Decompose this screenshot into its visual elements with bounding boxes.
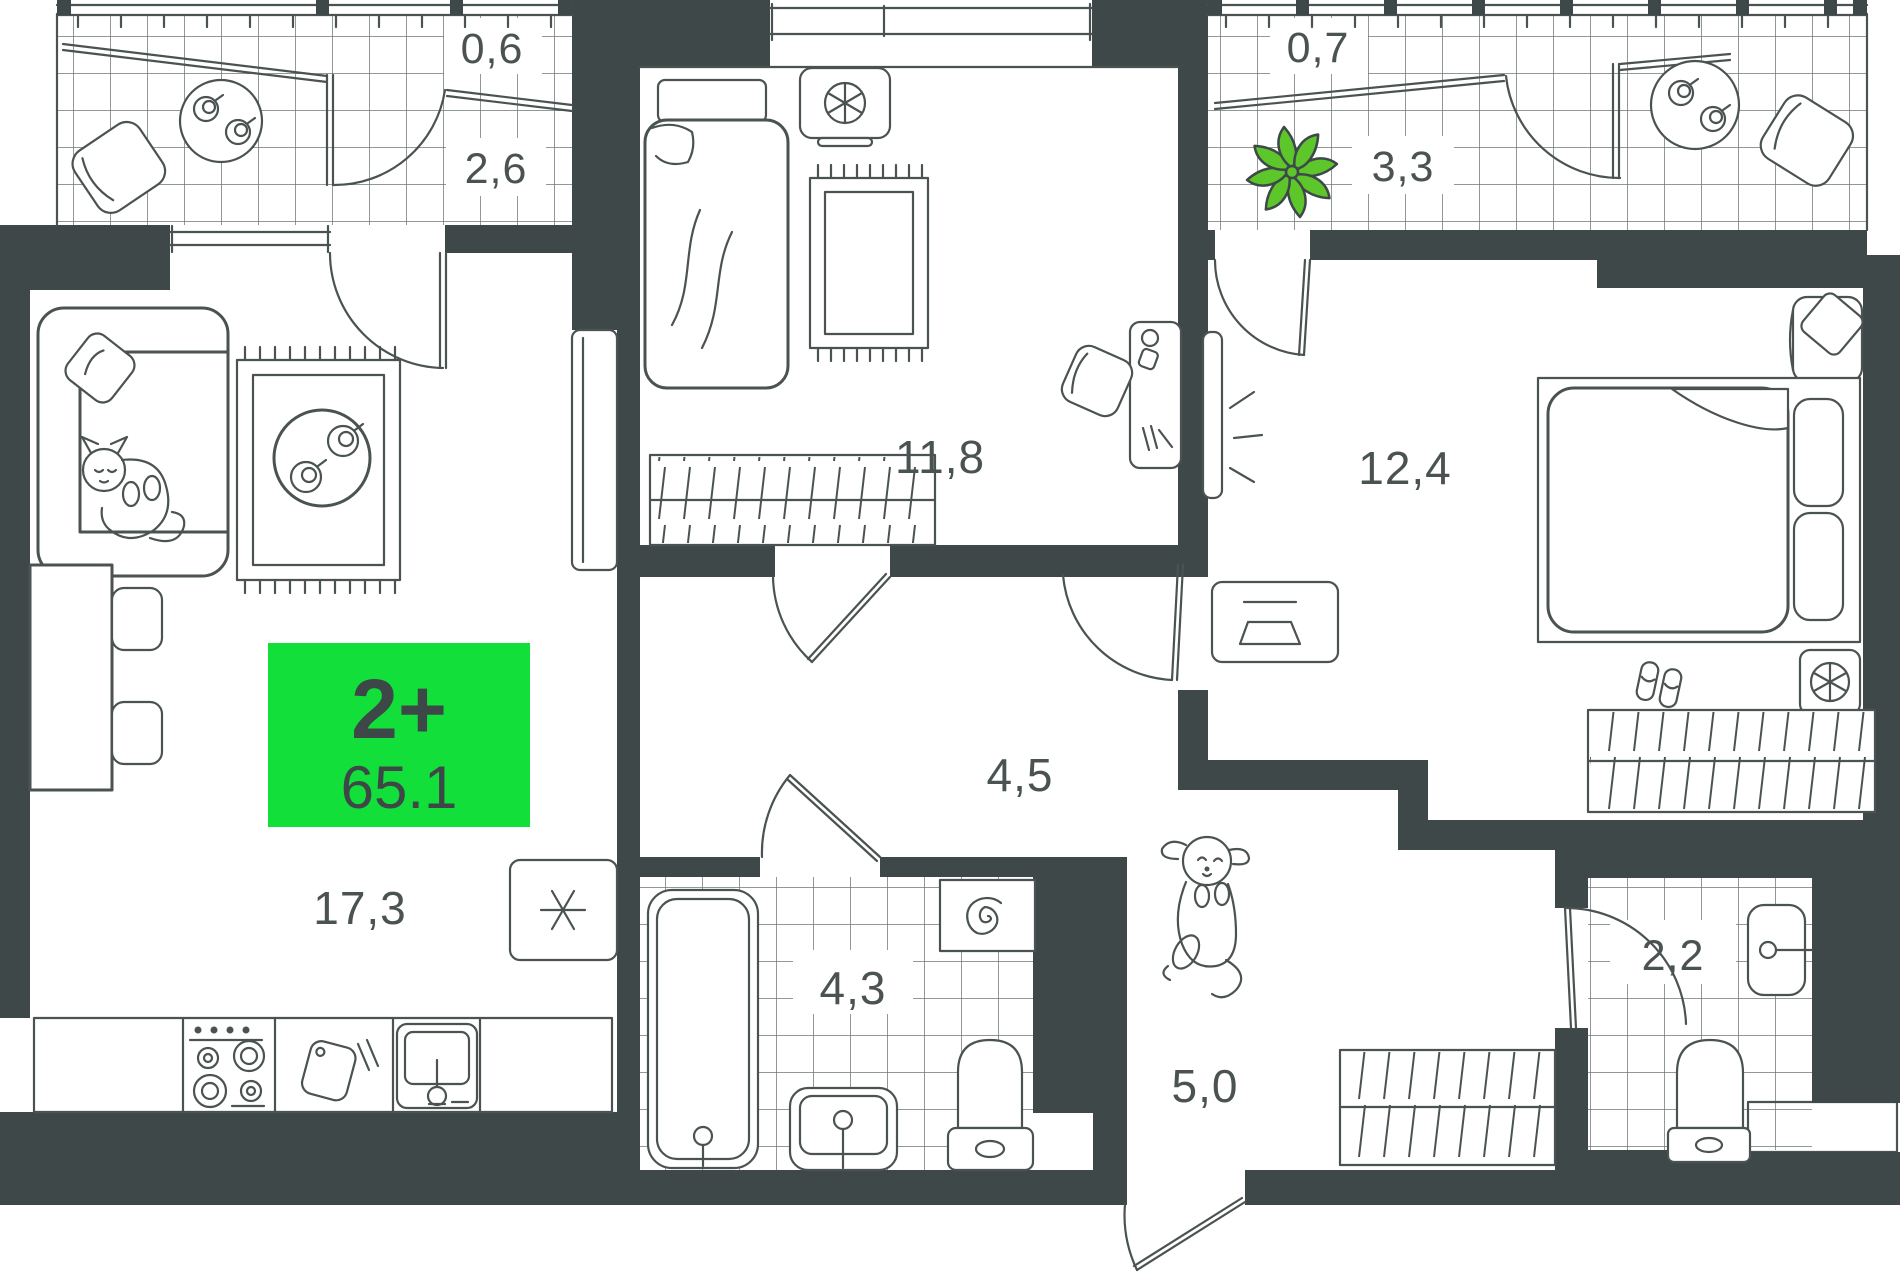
area-label-balcony-right: 3,3 [1372,143,1435,191]
armchair-icon [1790,290,1866,382]
area-label-balcony-right-upper: 0,7 [1287,24,1350,72]
kitchen-sink-icon [397,1024,477,1108]
single-bed-icon [645,80,788,388]
entrance-door [1125,1198,1245,1270]
floor-plan-page: 0,6 2,6 0,7 3,3 11,8 12,4 17,3 4,5 4,3 5… [0,0,1900,1276]
area-label-corridor: 5,0 [1172,1060,1239,1112]
dog-icon [1162,837,1249,997]
living-room-window [170,225,330,253]
dining-table-icon [30,565,162,790]
entry-wardrobe-icon [1340,1050,1555,1165]
area-label-living-kitchen: 17,3 [313,882,407,934]
wardrobe-icon [650,455,935,545]
ac-fan-icon [800,68,890,146]
rug-hatched-icon [1588,710,1875,812]
wc-toilet-icon [1668,1040,1750,1162]
fan-icon [1800,650,1860,714]
rug-icon [810,165,928,361]
area-label-hallway: 4,5 [987,749,1054,801]
living-balcony-door [330,253,446,368]
corridor [1162,837,1555,1165]
bedroom-right-door [1063,565,1183,680]
desk-icon [1130,322,1181,468]
slippers-icon [1635,661,1683,709]
bedroom-right [1203,290,1875,812]
area-label-bedroom-middle: 11,8 [895,431,985,483]
bathtub-icon [648,890,758,1168]
tall-cabinet-icon [572,330,617,570]
sofa-icon [38,308,228,576]
area-label-wc: 2,2 [1642,932,1705,980]
toilet-icon [948,1040,1033,1170]
area-label-bathroom: 4,3 [820,962,887,1014]
area-badge: 2+ 65.1 [268,643,530,827]
bedroom-middle-door [773,574,890,662]
bathroom-door [762,775,880,861]
cutting-board-icon [300,1039,378,1103]
desk-chair-icon [1057,341,1136,420]
tv-icon [1203,332,1262,498]
bedroom-right-balcony-door [1215,260,1310,355]
coffee-table-icon [274,410,370,506]
badge-rooms-label: 2+ [351,662,447,756]
washbasin-icon [790,1088,897,1170]
double-bed-icon [1538,378,1860,642]
balcony-table-icon [180,80,262,162]
area-label-balcony-left-upper: 0,6 [461,25,524,73]
area-label-bedroom-right: 12,4 [1358,442,1452,494]
wc-washbasin-icon [1748,905,1812,995]
badge-area-value: 65.1 [341,754,458,821]
floor-plan-svg: 0,6 2,6 0,7 3,3 11,8 12,4 17,3 4,5 4,3 5… [0,0,1900,1276]
stove-icon [190,1027,264,1108]
washing-machine-icon [940,880,1035,951]
fridge-icon [510,860,617,960]
balcony-table-icon [1651,61,1739,149]
area-label-balcony-left: 2,6 [465,145,528,193]
bedside-desk-icon [1212,582,1338,662]
